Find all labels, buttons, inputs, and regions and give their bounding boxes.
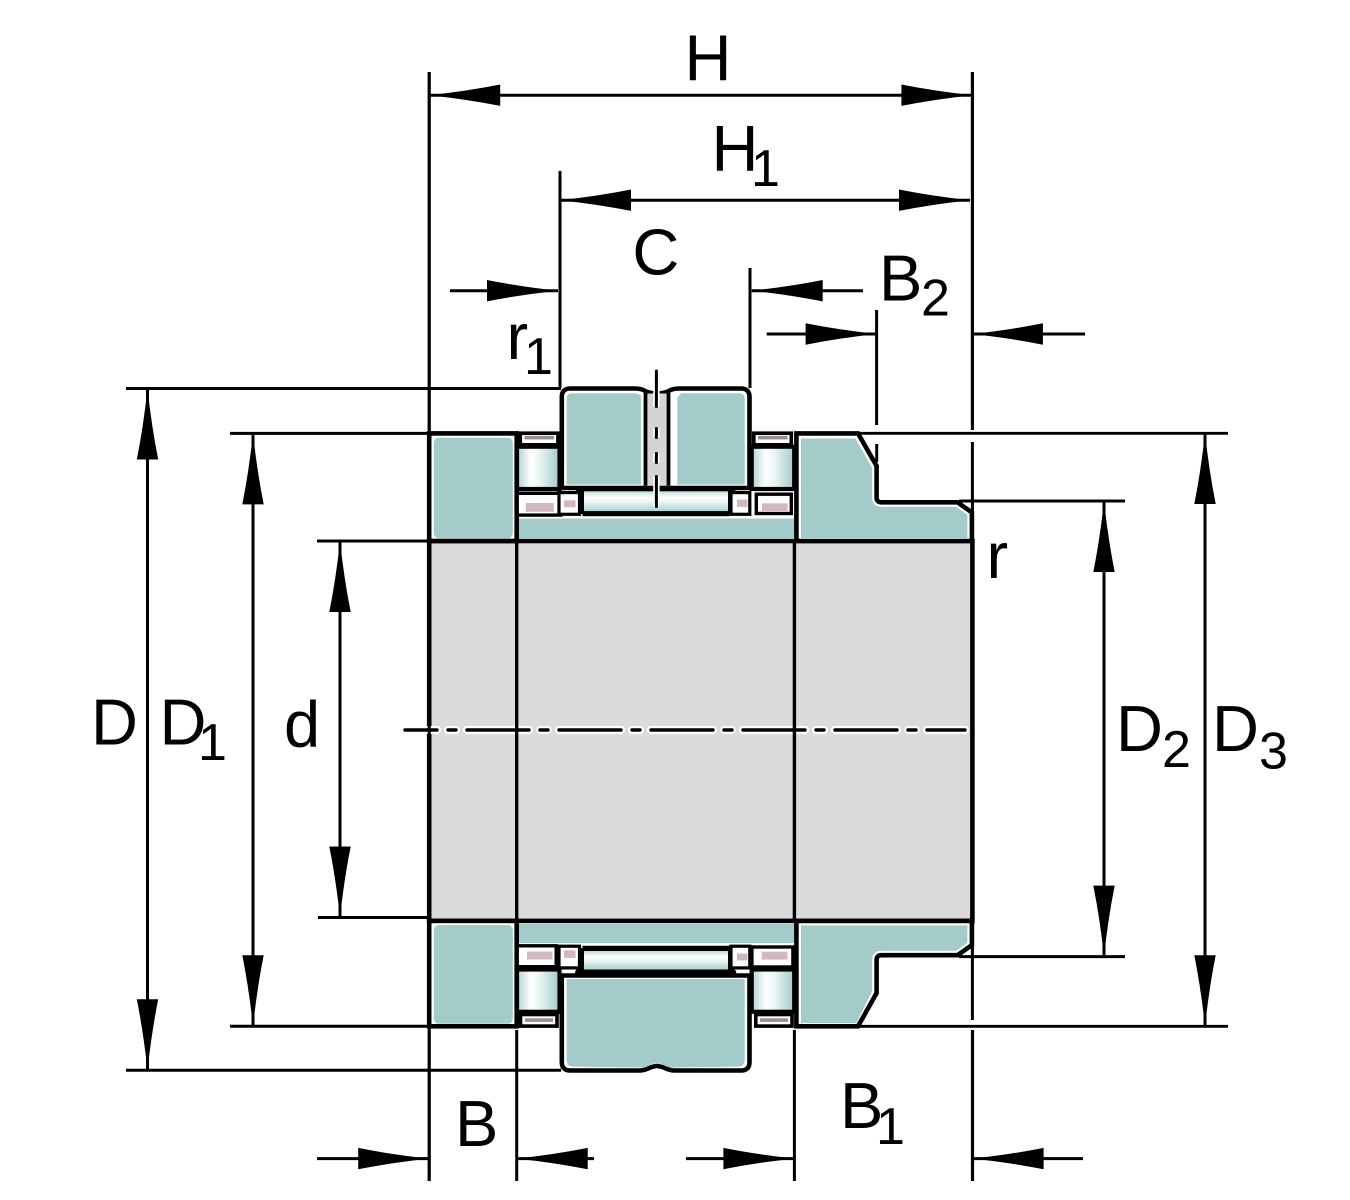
svg-text:1: 1 — [198, 714, 227, 772]
svg-text:D: D — [91, 686, 138, 759]
svg-text:3: 3 — [1259, 723, 1288, 781]
svg-text:2: 2 — [921, 270, 950, 328]
svg-text:D: D — [1212, 692, 1259, 765]
svg-text:1: 1 — [876, 1098, 905, 1156]
svg-text:D: D — [1116, 692, 1163, 765]
svg-text:H: H — [685, 21, 732, 94]
svg-text:2: 2 — [1162, 721, 1191, 779]
svg-text:1: 1 — [751, 140, 780, 198]
svg-text:C: C — [632, 216, 679, 289]
svg-text:B: B — [879, 242, 922, 315]
svg-text:B: B — [455, 1087, 498, 1160]
svg-text:r: r — [987, 519, 1009, 592]
svg-text:d: d — [284, 688, 320, 761]
svg-text:1: 1 — [524, 328, 553, 386]
